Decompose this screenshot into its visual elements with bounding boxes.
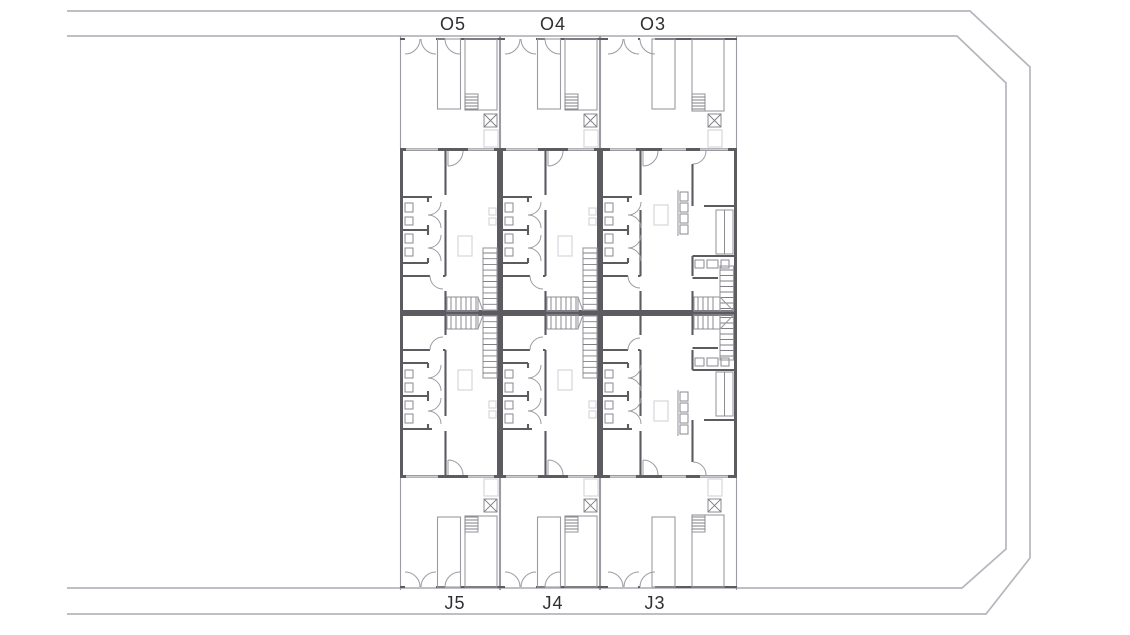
garden-O4 [500,36,600,148]
plan-O3 [602,148,736,312]
garden-J3 [600,478,737,590]
plan-O5 [402,148,499,312]
plan-J5 [402,315,499,479]
plan-J3 [602,315,736,479]
floor-plan-page: O5 O4 O3 J5 J4 J3 [0,0,1130,635]
unit-label-o5: O5 [440,14,466,34]
unit-label-j4: J4 [542,593,563,613]
garden-J4 [500,478,600,590]
unit-label-o4: O4 [540,14,566,34]
plan-O4 [502,148,599,312]
garden-O5 [400,36,500,148]
garden-J5 [400,478,500,590]
unit-label-o3: O3 [640,14,666,34]
unit-label-j3: J3 [644,593,665,613]
garden-O3 [600,36,737,148]
plan-J4 [502,315,599,479]
unit-label-j5: J5 [444,593,465,613]
floor-plan-drawing: O5 O4 O3 J5 J4 J3 [0,0,1130,635]
